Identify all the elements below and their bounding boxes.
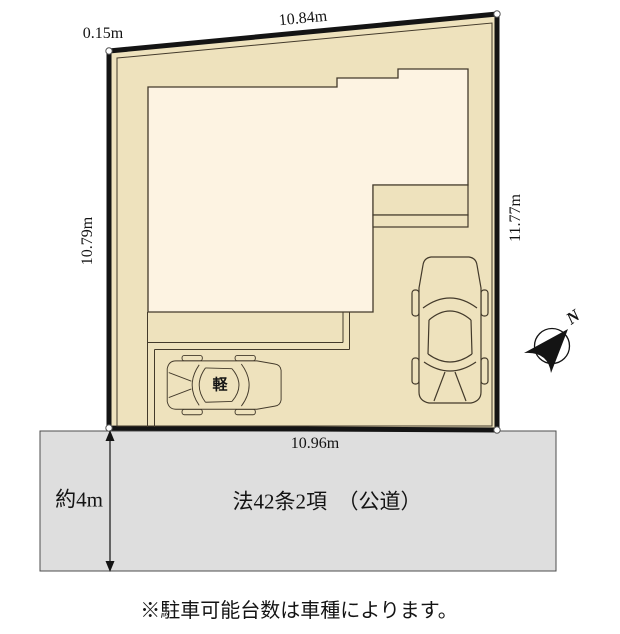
site-plan-drawing — [0, 0, 620, 634]
dimension-label-top-left: 0.15m — [83, 26, 123, 42]
corner-marker-top-left — [106, 48, 112, 54]
corner-marker-top-right — [494, 11, 500, 17]
parking-note: ※駐車可能台数は車種によります。 — [140, 601, 458, 621]
dimension-label-right: 11.77m — [508, 194, 524, 242]
compass — [524, 329, 570, 374]
road-width-label: 約4m — [55, 490, 103, 511]
dimension-label-bottom: 10.96m — [291, 436, 339, 452]
car-large — [412, 257, 488, 403]
balcony-band-lower — [373, 215, 468, 227]
kei-car-label: 軽 — [212, 379, 227, 394]
dimension-label-left: 10.79m — [80, 217, 96, 265]
road-name-label: 法42条2項 （公道） — [233, 492, 422, 513]
balcony-band-upper — [373, 185, 468, 215]
corner-marker-bottom-right — [494, 427, 500, 433]
site-plan: 10.84m 0.15m 10.79m 11.77m 10.96m 約4m 法4… — [0, 0, 620, 634]
corner-marker-bottom-left — [106, 425, 112, 431]
